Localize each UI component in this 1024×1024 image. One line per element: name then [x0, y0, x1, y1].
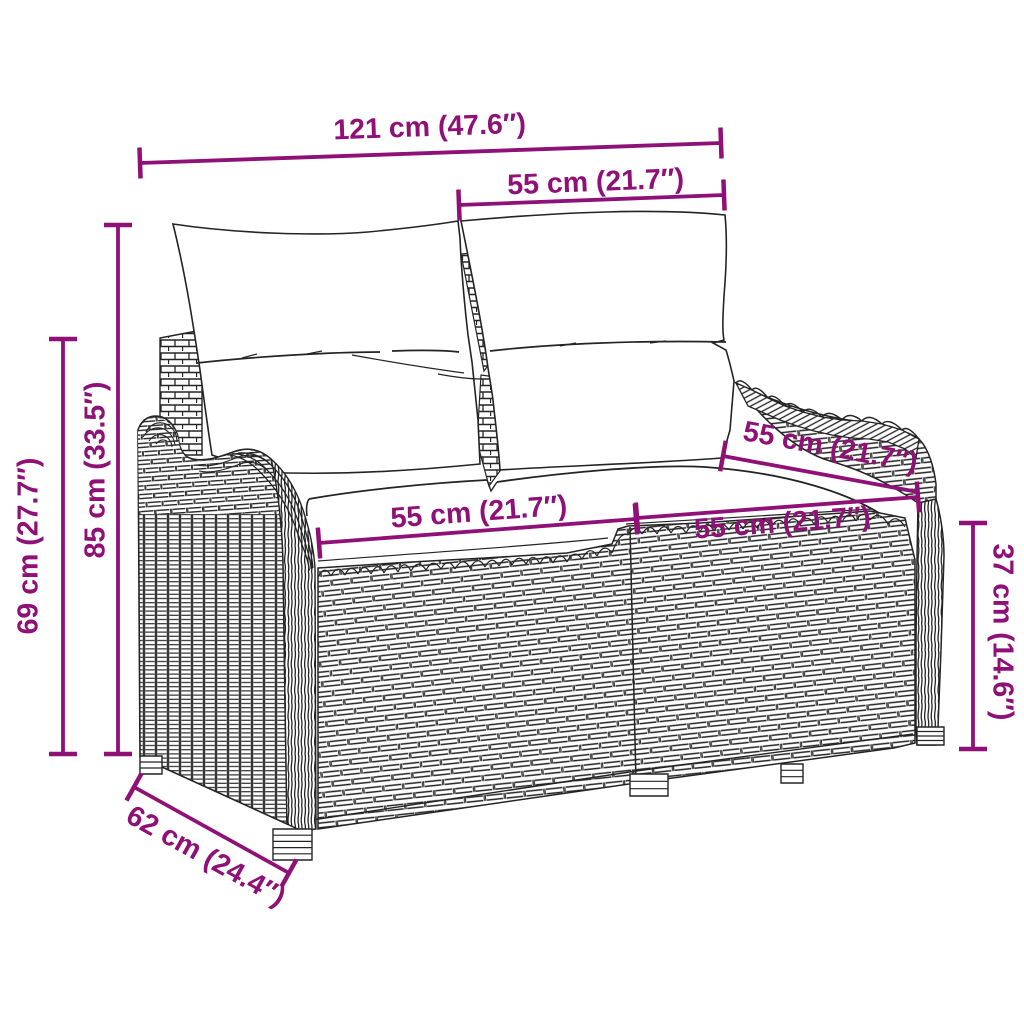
svg-text:85 cm (33.5″): 85 cm (33.5″): [80, 382, 112, 559]
svg-text:55 cm (21.7″): 55 cm (21.7″): [507, 163, 685, 202]
svg-text:121 cm (47.6″): 121 cm (47.6″): [333, 108, 527, 147]
svg-text:69 cm (27.7″): 69 cm (27.7″): [13, 458, 45, 635]
svg-text:37 cm (14.6″): 37 cm (14.6″): [987, 544, 1019, 721]
